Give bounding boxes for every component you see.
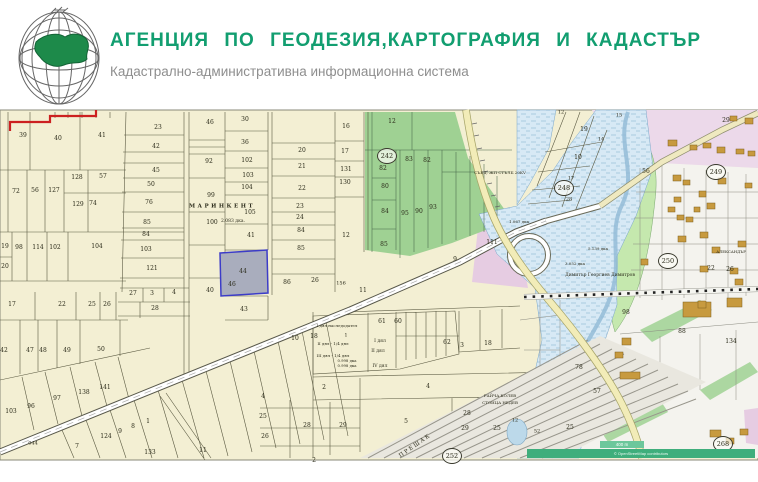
cadastral-map[interactable]: 3940417256127128571297419981141021042017… [0,0,758,482]
map-sheet-link[interactable]: 242 [377,148,397,164]
highlighted-parcel-44[interactable] [220,250,268,296]
map-sheet-link[interactable]: 250 [658,253,678,269]
map-attribution: © OpenStreetMap contributors [527,449,755,458]
map-graphics [0,0,758,482]
map-scale-label: 400 m [600,441,644,448]
map-sheet-link[interactable]: 252 [442,448,462,464]
map-sheet-link[interactable]: 249 [706,164,726,180]
map-sheet-link[interactable]: 248 [554,180,574,196]
page: АГЕНЦИЯ ПО ГЕОДЕЗИЯ,КАРТОГРАФИЯ И КАДАСТ… [0,0,758,482]
